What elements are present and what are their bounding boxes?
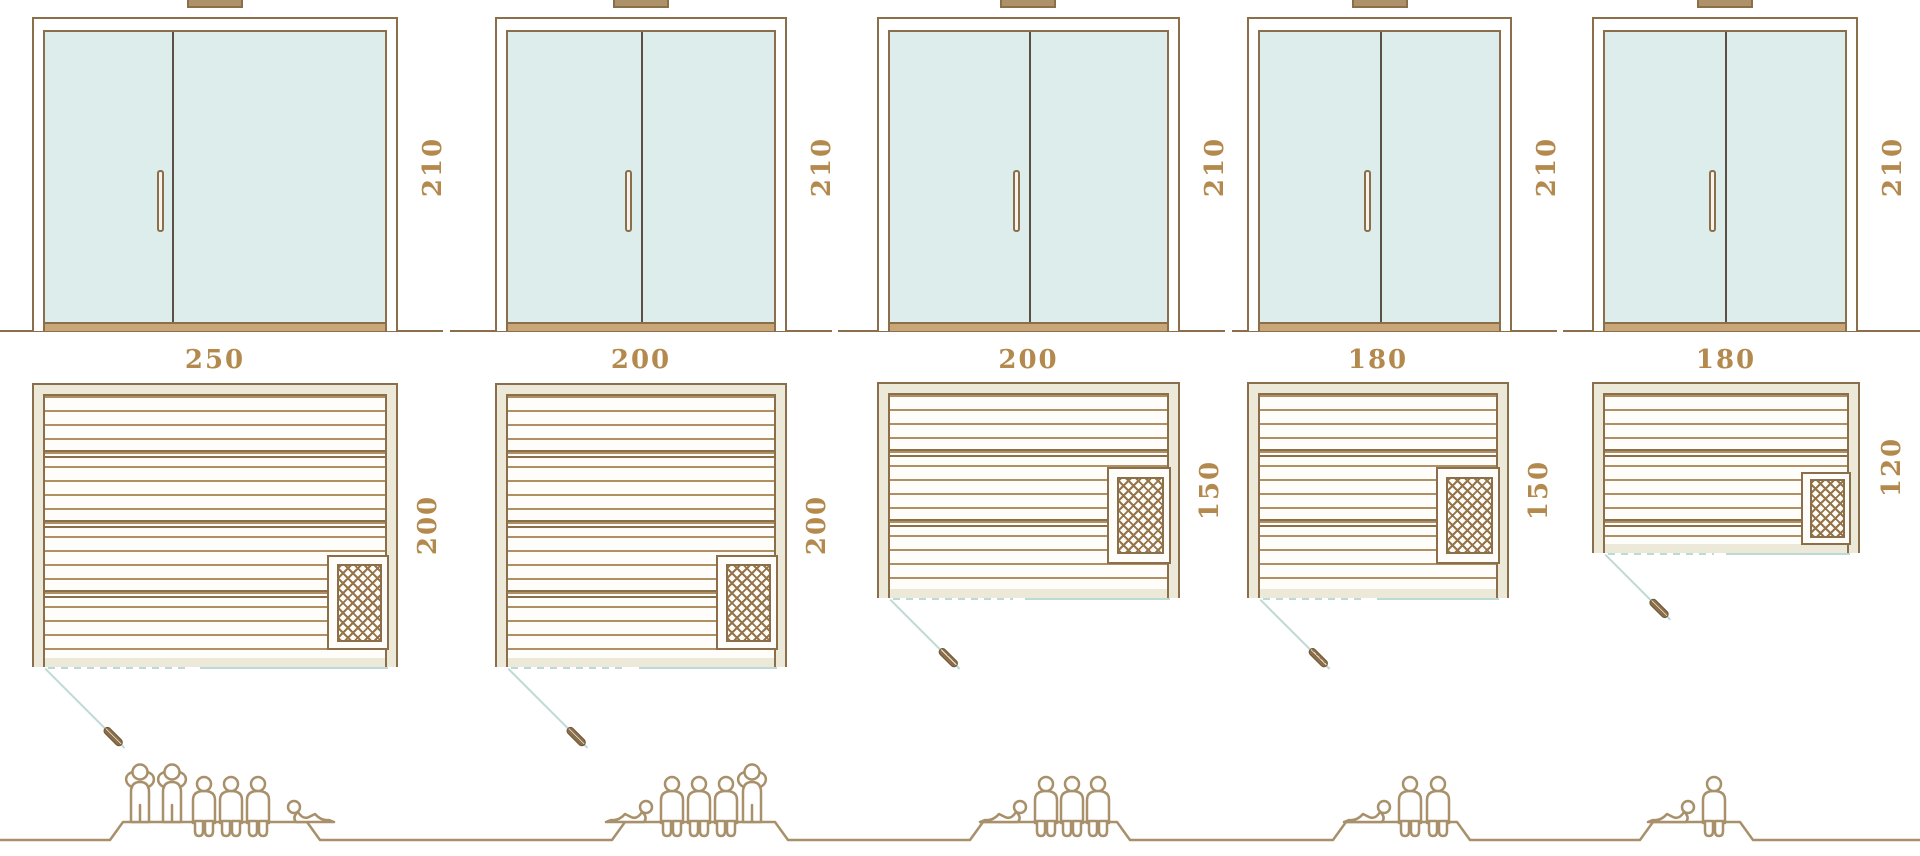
door-glass-panel [506, 30, 776, 331]
person-standing-icon [158, 765, 186, 823]
door-opening-dashed [1263, 598, 1365, 600]
sauna-dimensions-diagram: 210 250 200 210 200 [0, 0, 1920, 856]
door-sill [1605, 322, 1845, 331]
door-swing-line [45, 668, 126, 749]
person-standing-icon [738, 765, 766, 823]
person-seated-icon [220, 777, 242, 836]
door-swing-line [1260, 599, 1331, 670]
open-door-symbol [565, 725, 588, 748]
person-seated-icon [661, 777, 683, 836]
open-door-symbol [1648, 597, 1671, 620]
door-leaf-divider [641, 32, 643, 331]
floor-plan [1592, 382, 1860, 553]
front-glass-line [1377, 598, 1499, 600]
door-top-vent [1000, 0, 1056, 8]
person-seated-icon [715, 777, 737, 836]
front-glass-line [1025, 598, 1170, 600]
door-sill [890, 322, 1167, 331]
door-height-dimension: 210 [1878, 125, 1908, 209]
door-sill [508, 322, 774, 331]
heater-stove [337, 564, 382, 642]
door-top-vent [187, 0, 243, 8]
door-height-dimension: 210 [1532, 125, 1562, 209]
person-lying-icon [606, 801, 652, 822]
plan-depth-dimension: 150 [1524, 448, 1554, 532]
door-swing-line [890, 599, 961, 670]
door-opening-dashed [48, 667, 188, 669]
person-seated-icon [193, 777, 215, 836]
front-glass-line [1726, 553, 1850, 555]
door-opening-dashed [511, 667, 627, 669]
door-top-vent [1697, 0, 1753, 8]
door-sill [1260, 322, 1499, 331]
door-elevation [1592, 17, 1858, 331]
capacity-group [1344, 777, 1449, 836]
person-seated-icon [1035, 777, 1057, 836]
front-glass-line [639, 667, 777, 669]
open-door-symbol [102, 725, 125, 748]
floor-plan [32, 383, 398, 667]
person-seated-icon [688, 777, 710, 836]
plan-depth-dimension: 200 [802, 483, 832, 567]
door-leaf-divider [1380, 32, 1382, 331]
floor-plan [1247, 382, 1509, 598]
door-leaf-divider [1029, 32, 1031, 331]
plan-depth-dimension: 150 [1195, 448, 1225, 532]
door-glass-panel [1258, 30, 1501, 331]
door-elevation [32, 17, 398, 331]
heater-stove [1810, 479, 1845, 538]
door-sill [45, 322, 385, 331]
capacity-ground-profile [0, 822, 1920, 840]
door-opening-dashed [893, 598, 1013, 600]
door-swing-line [508, 668, 589, 749]
floor-plan [495, 383, 787, 667]
capacity-group [606, 765, 766, 837]
floor-plan [877, 382, 1180, 598]
heater-stove [1446, 477, 1493, 554]
door-glass-panel [43, 30, 387, 331]
person-lying-icon [980, 801, 1026, 822]
plan-width-dimension: 180 [1592, 345, 1860, 375]
door-swing-line [1605, 554, 1671, 620]
capacity-group [1648, 777, 1725, 836]
door-leaf-divider [172, 32, 174, 331]
heater-stove [1117, 477, 1164, 554]
person-seated-icon [1427, 777, 1449, 836]
plan-depth-dimension: 200 [413, 483, 443, 567]
door-top-vent [613, 0, 669, 8]
capacity-group [126, 765, 334, 837]
capacity-row [0, 746, 1920, 856]
plan-width-dimension: 180 [1247, 345, 1509, 375]
door-elevation [1247, 17, 1512, 331]
plan-depth-dimension: 120 [1877, 425, 1907, 509]
door-height-dimension: 210 [807, 125, 837, 209]
person-standing-icon [126, 765, 154, 823]
door-elevation [495, 17, 787, 331]
door-handle [157, 170, 164, 232]
door-opening-dashed [1608, 553, 1714, 555]
door-glass-panel [888, 30, 1169, 331]
open-door-symbol [937, 646, 960, 669]
person-seated-icon [1087, 777, 1109, 836]
plan-width-dimension: 200 [877, 345, 1180, 375]
heater-stove [726, 564, 771, 642]
door-handle [1364, 170, 1371, 232]
person-seated-icon [1399, 777, 1421, 836]
door-elevation [877, 17, 1180, 331]
person-seated-icon [1703, 777, 1725, 836]
capacity-group [980, 777, 1109, 836]
door-leaf-divider [1725, 32, 1727, 331]
door-handle [1013, 170, 1020, 232]
plan-width-dimension: 200 [495, 345, 787, 375]
person-lying-icon [1648, 801, 1694, 822]
door-glass-panel [1603, 30, 1847, 331]
door-handle [1709, 170, 1716, 232]
door-height-dimension: 210 [1200, 125, 1230, 209]
plan-width-dimension: 250 [32, 345, 398, 375]
open-door-symbol [1307, 646, 1330, 669]
person-seated-icon [1061, 777, 1083, 836]
door-height-dimension: 210 [418, 125, 448, 209]
door-top-vent [1352, 0, 1408, 8]
door-handle [625, 170, 632, 232]
person-seated-icon [247, 777, 269, 836]
person-lying-icon [288, 801, 334, 822]
person-lying-icon [1344, 801, 1390, 822]
front-glass-line [200, 667, 388, 669]
